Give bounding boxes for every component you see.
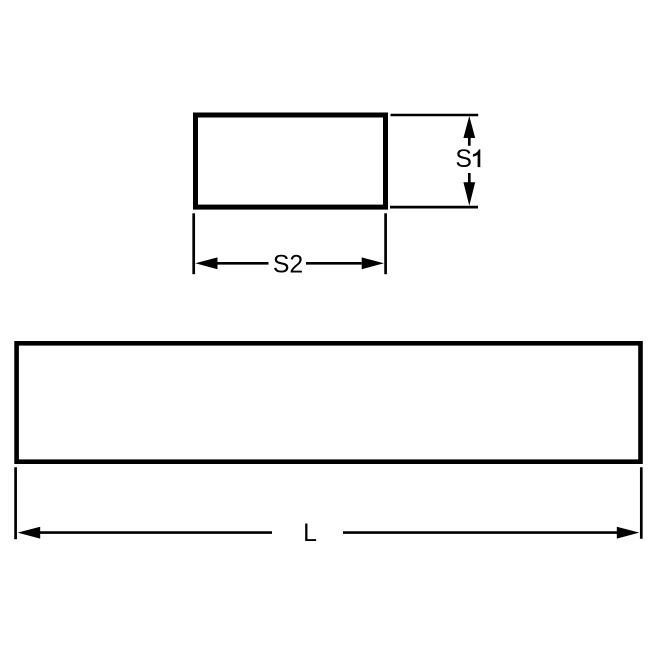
svg-text:S2: S2 [273,251,303,278]
svg-text:S: S [455,146,472,173]
svg-text:L: L [303,520,317,547]
